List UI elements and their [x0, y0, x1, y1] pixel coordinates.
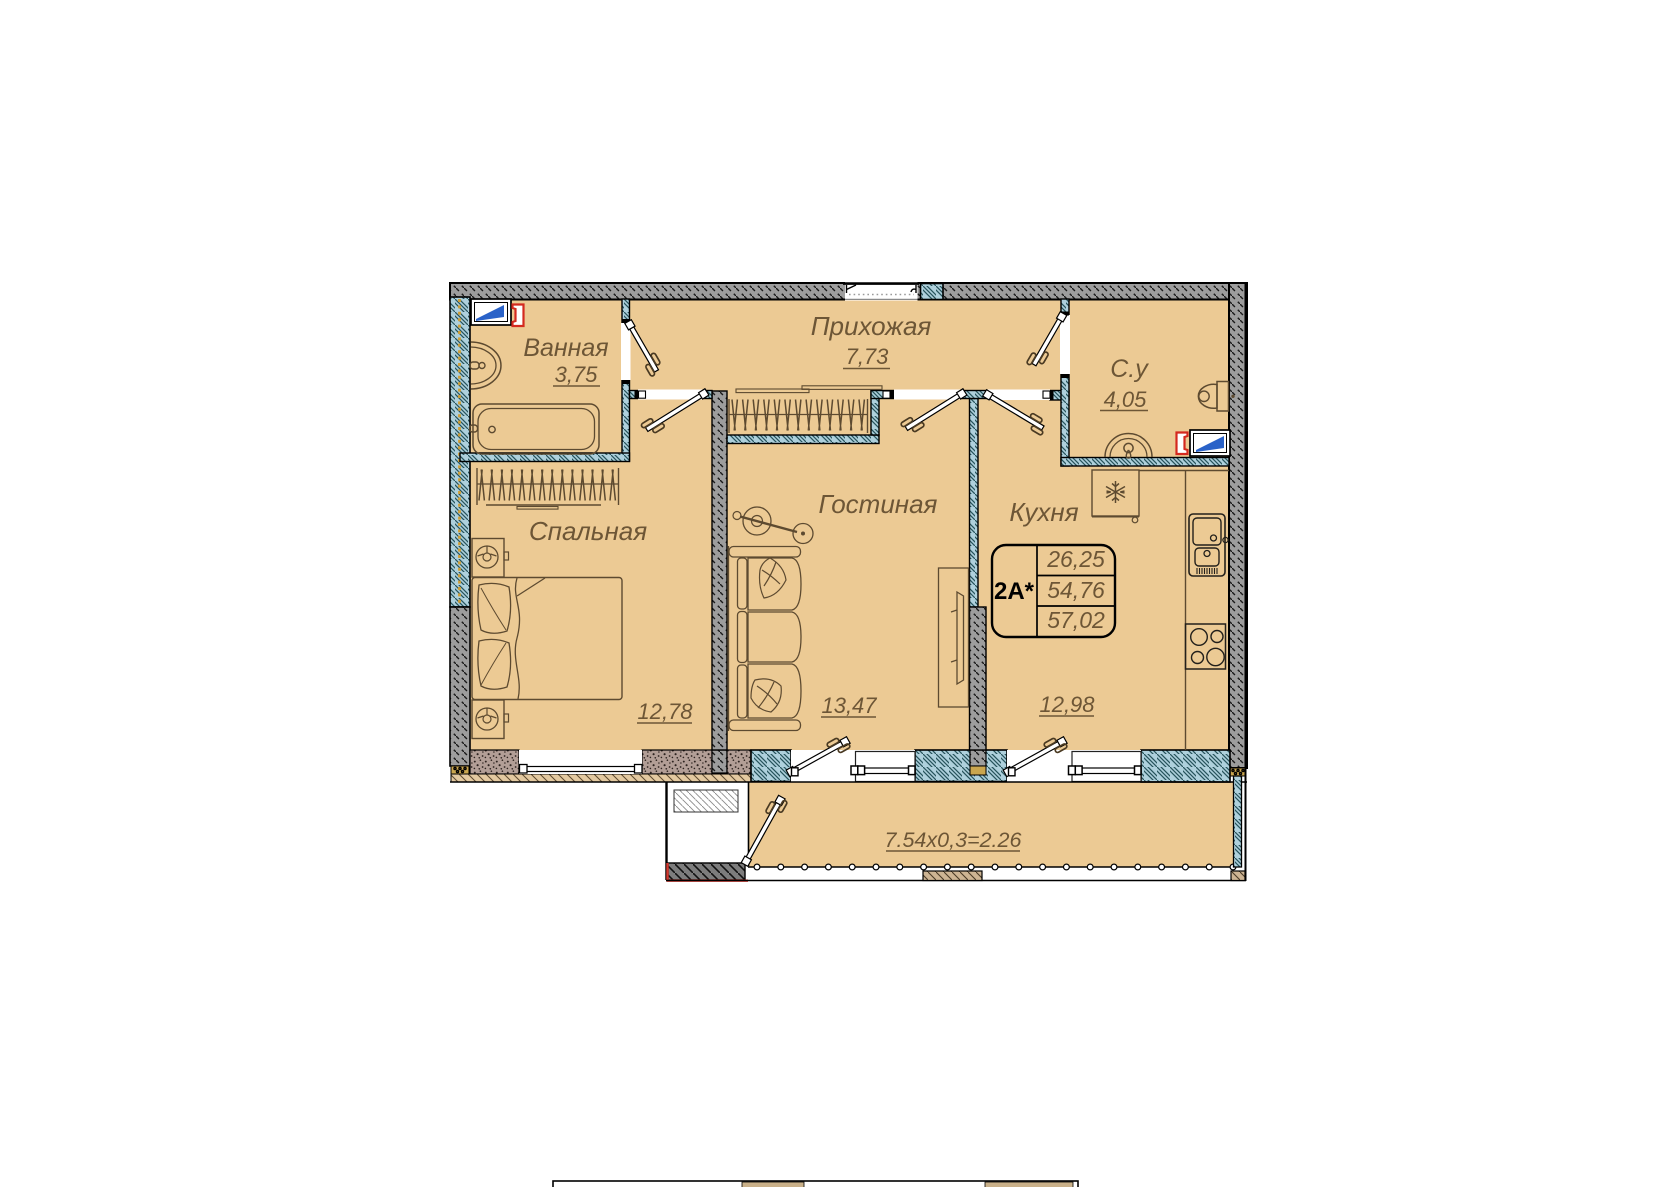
svg-text:7.54х0,3=2.26: 7.54х0,3=2.26 — [885, 828, 1022, 852]
svg-text:57,02: 57,02 — [1047, 607, 1105, 633]
svg-text:Гостиная: Гостиная — [819, 489, 938, 519]
svg-text:4,05: 4,05 — [1104, 387, 1148, 412]
svg-text:Спальная: Спальная — [529, 516, 647, 546]
svg-text:7,73: 7,73 — [846, 344, 890, 369]
svg-text:12,98: 12,98 — [1039, 692, 1095, 717]
svg-text:Ванная: Ванная — [523, 334, 608, 362]
svg-text:26,25: 26,25 — [1046, 546, 1105, 572]
svg-text:С.у: С.у — [1110, 355, 1149, 383]
svg-text:3,75: 3,75 — [555, 362, 599, 387]
svg-text:2А*: 2А* — [994, 578, 1035, 605]
svg-text:Прихожая: Прихожая — [811, 311, 932, 341]
svg-text:13,47: 13,47 — [821, 693, 877, 718]
svg-text:54,76: 54,76 — [1047, 577, 1105, 603]
svg-text:12,78: 12,78 — [637, 699, 693, 724]
svg-text:Кухня: Кухня — [1009, 497, 1078, 527]
